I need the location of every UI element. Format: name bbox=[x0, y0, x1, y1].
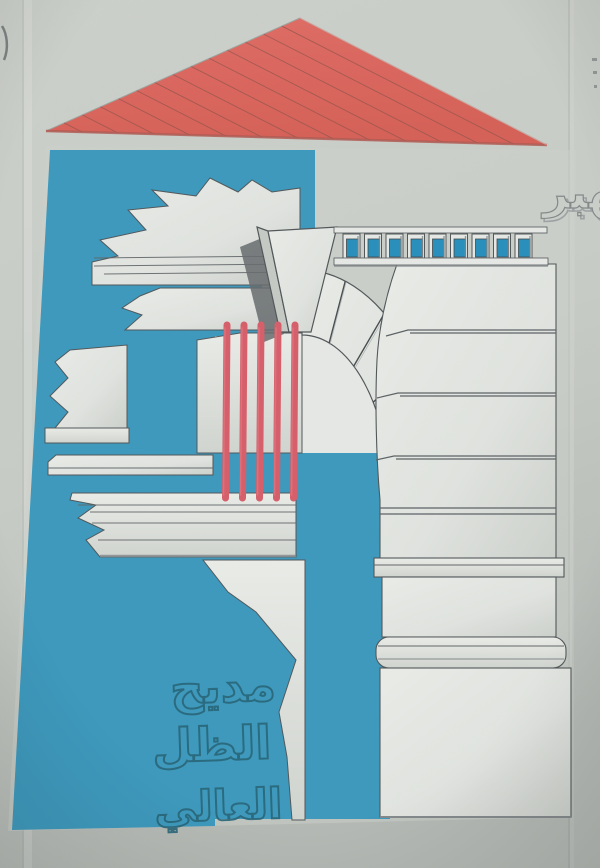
photo-vignette bbox=[0, 0, 600, 868]
album-cover-scene: خالد الهبر خالد الهبر مديح الظل العالي bbox=[0, 0, 600, 868]
photo-of-album-cover: خالد الهبر خالد الهبر مديح الظل العالي bbox=[0, 0, 600, 868]
